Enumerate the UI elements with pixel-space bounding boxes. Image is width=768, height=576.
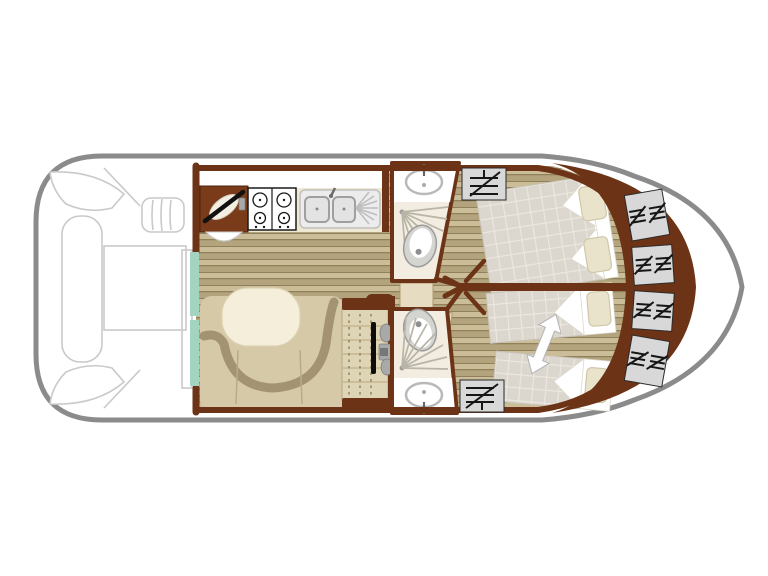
shelf-box-starboard <box>460 380 504 412</box>
center-wall <box>458 283 630 291</box>
boarding-steps <box>142 198 184 232</box>
galley-end-wall <box>382 168 389 232</box>
pillow <box>586 291 611 327</box>
pillow <box>583 236 612 273</box>
sliding-door-upper[interactable] <box>190 252 199 316</box>
galley <box>196 168 389 241</box>
sink-icon <box>300 188 380 228</box>
boat-floorplan-canvas <box>0 0 768 576</box>
shelf-box-port <box>462 168 506 200</box>
grab-rail <box>371 322 376 374</box>
shelf-panel <box>632 291 675 332</box>
sideboard <box>342 294 395 410</box>
galley-backsplash <box>196 171 388 188</box>
shower-room-starboard <box>392 306 457 414</box>
floorplan-svg <box>0 0 768 576</box>
oval-table <box>222 288 300 346</box>
sliding-door-lower[interactable] <box>190 320 199 386</box>
saloon <box>200 288 344 412</box>
stove-icon <box>248 188 296 230</box>
shelf-panel <box>632 245 675 286</box>
sun-lounger <box>62 216 102 362</box>
